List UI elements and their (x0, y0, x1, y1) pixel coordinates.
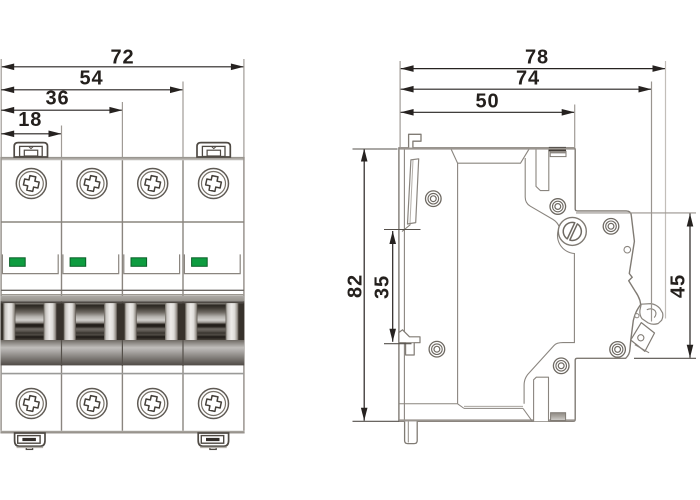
svg-text:45: 45 (668, 274, 690, 298)
svg-text:36: 36 (45, 88, 69, 110)
svg-text:18: 18 (18, 109, 42, 131)
svg-text:78: 78 (525, 47, 549, 69)
svg-text:72: 72 (110, 47, 134, 69)
svg-text:54: 54 (79, 67, 103, 89)
svg-text:35: 35 (372, 275, 394, 299)
svg-text:74: 74 (516, 68, 540, 90)
svg-text:82: 82 (345, 274, 367, 298)
svg-text:50: 50 (475, 91, 499, 113)
